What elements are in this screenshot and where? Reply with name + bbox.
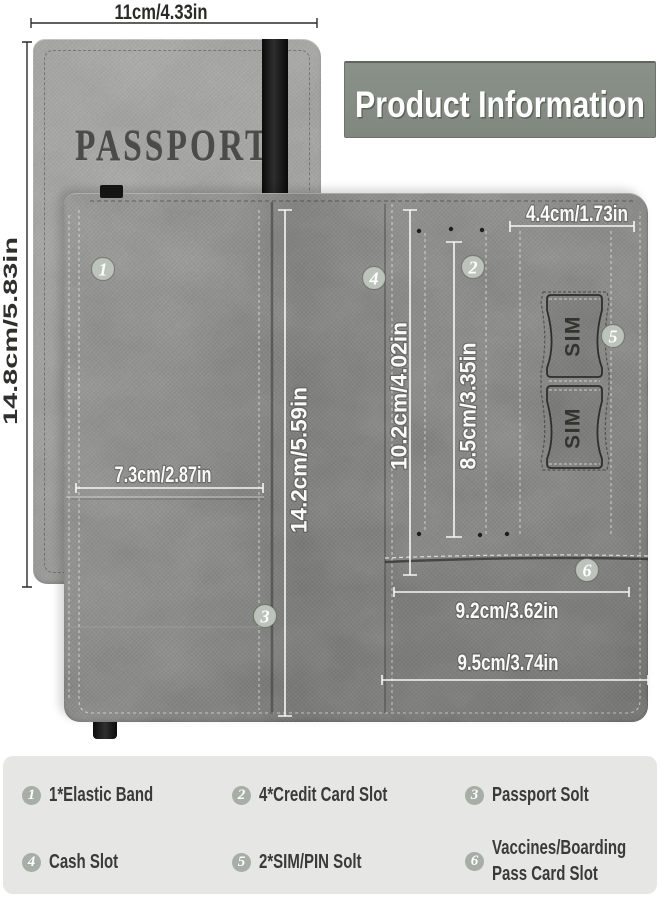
svg-text:8.5cm/3.35in: 8.5cm/3.35in [456,343,481,470]
svg-text:3: 3 [260,607,270,627]
svg-text:9.5cm/3.74in: 9.5cm/3.74in [458,650,559,675]
svg-text:1: 1 [99,260,108,280]
svg-text:10.2cm/4.02in: 10.2cm/4.02in [387,322,412,470]
svg-text:11cm/4.33in: 11cm/4.33in [115,1,208,24]
svg-text:4: 4 [369,269,379,289]
svg-text:9.2cm/3.62in: 9.2cm/3.62in [456,598,559,623]
svg-text:14.8cm/5.83in: 14.8cm/5.83in [0,237,22,425]
svg-text:2: 2 [468,258,478,278]
svg-text:SIM: SIM [562,407,585,449]
svg-text:6: 6 [583,561,592,581]
svg-text:4.4cm/1.73in: 4.4cm/1.73in [526,201,628,226]
svg-text:7.3cm/2.87in: 7.3cm/2.87in [115,462,212,487]
svg-text:5: 5 [609,327,618,347]
svg-text:14.2cm/5.59in: 14.2cm/5.59in [287,387,312,533]
svg-text:SIM: SIM [562,315,585,357]
